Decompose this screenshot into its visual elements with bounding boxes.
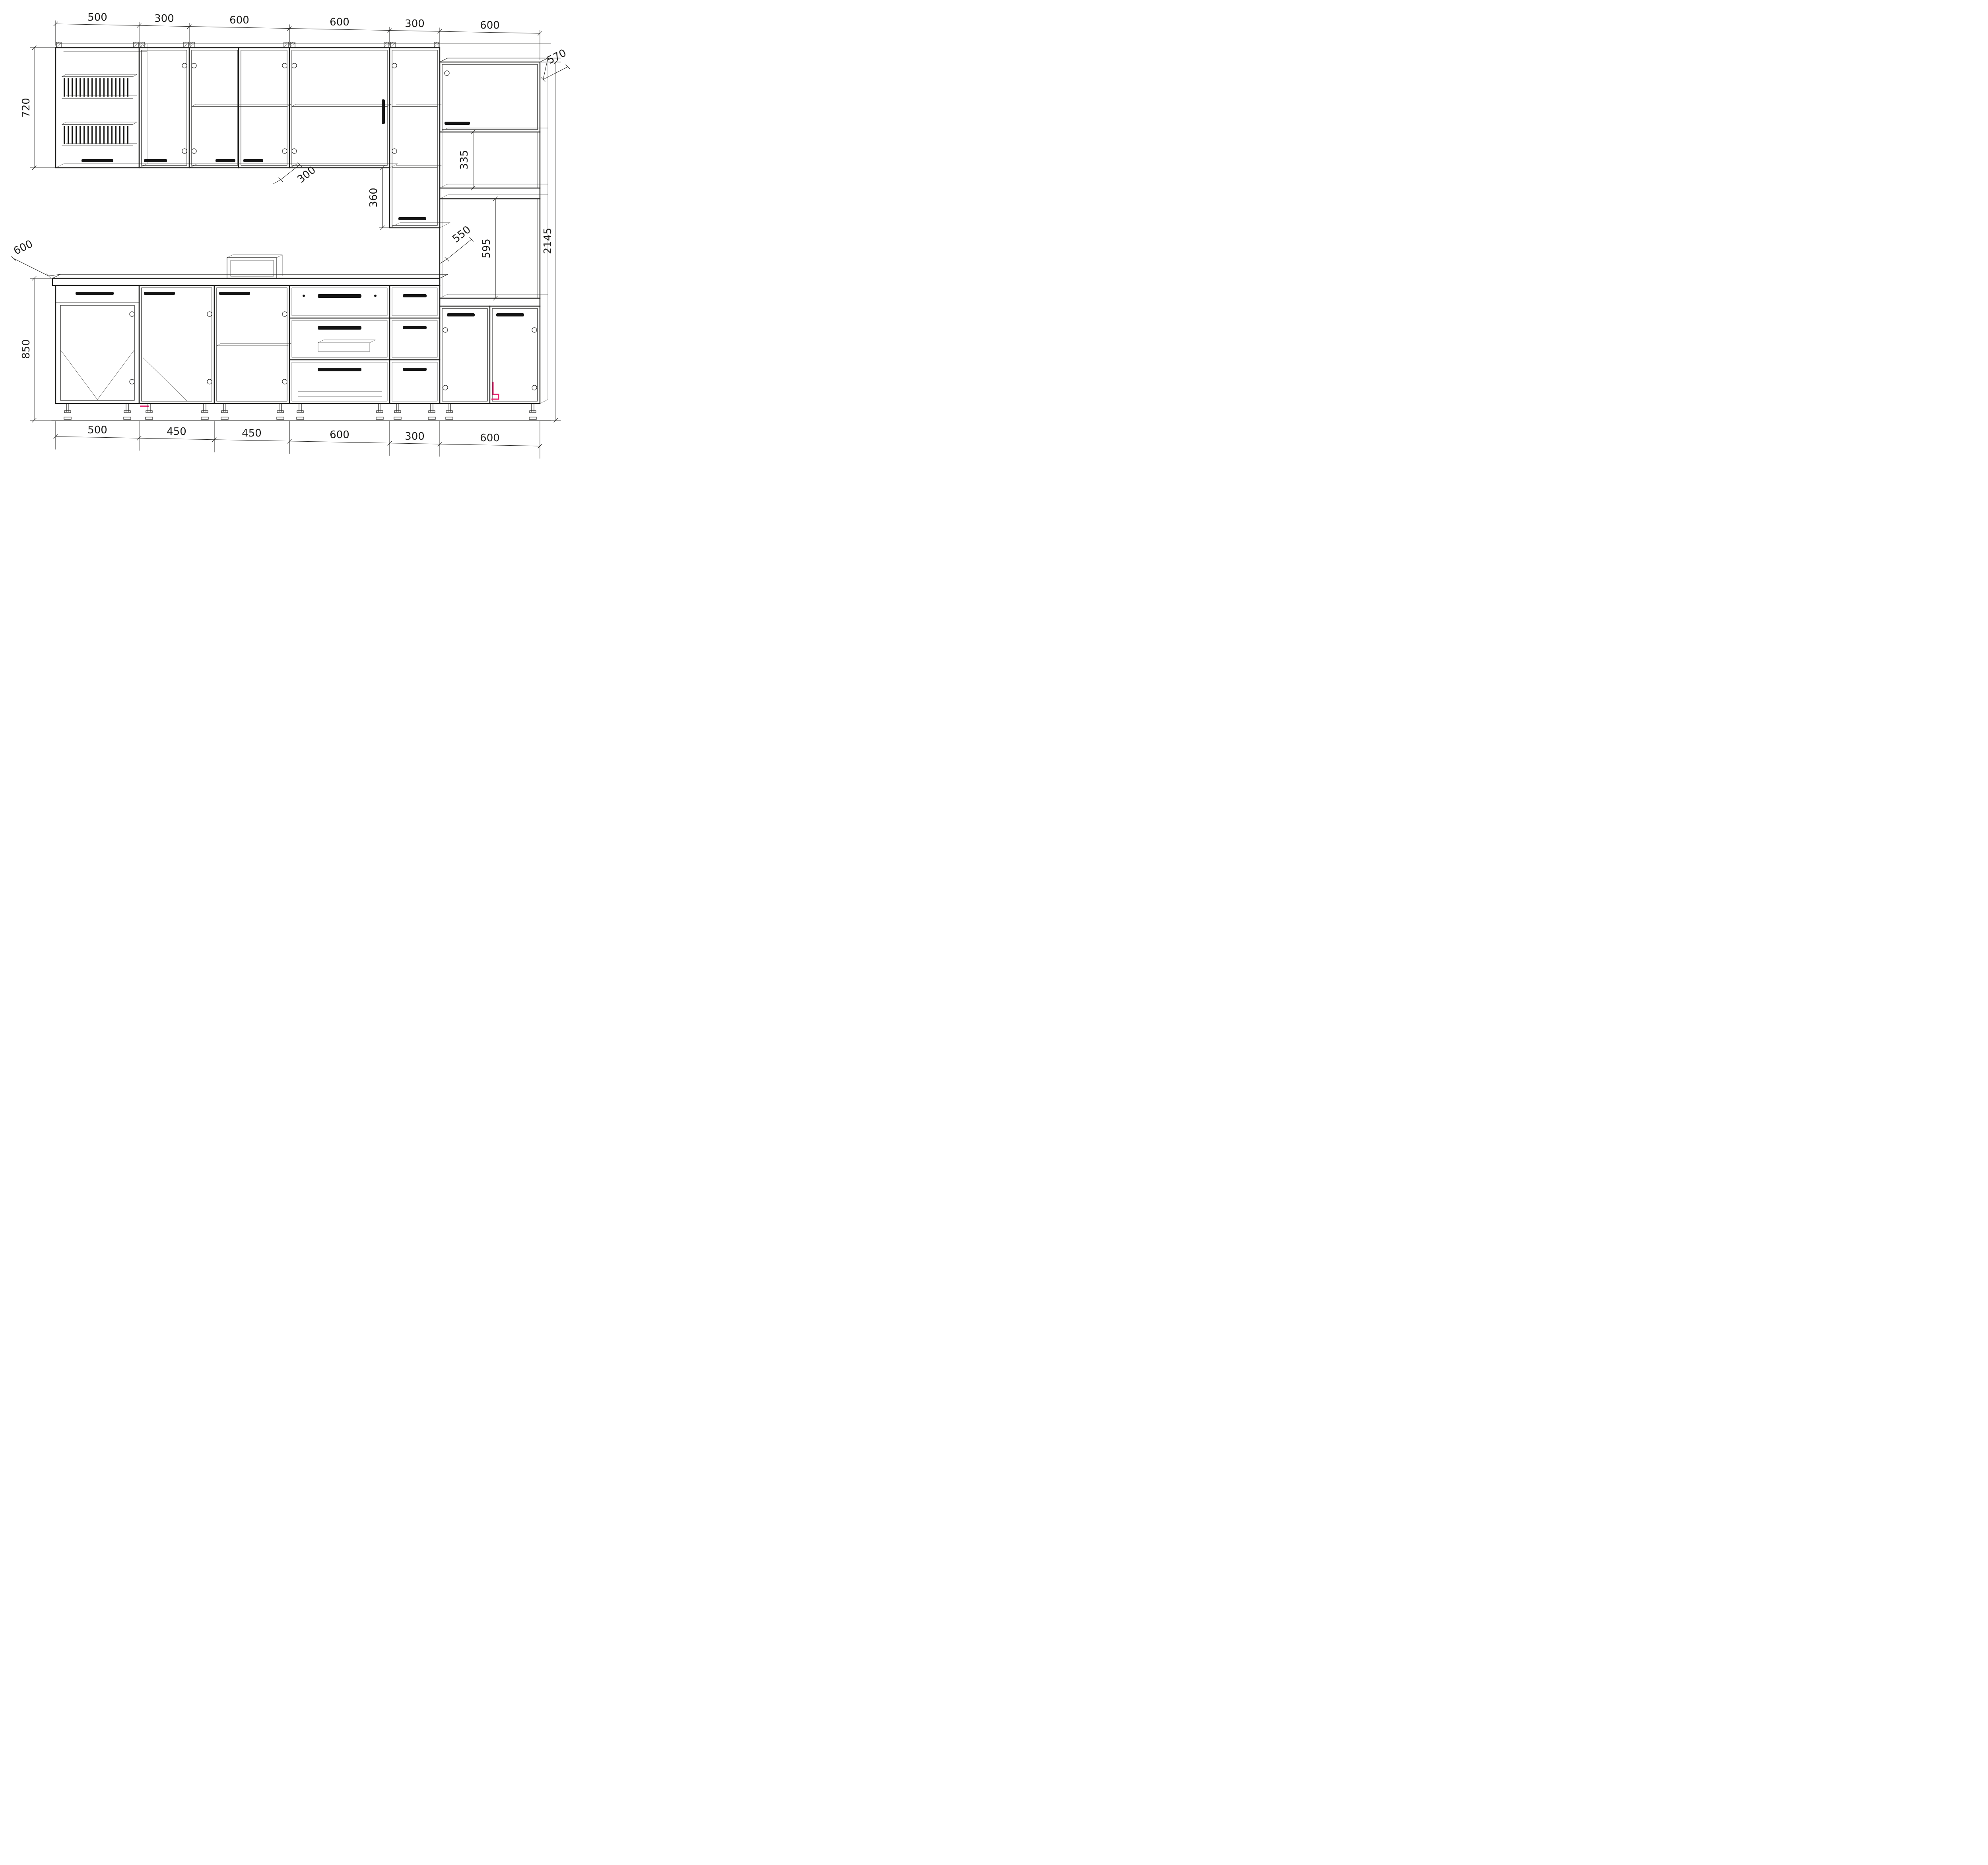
dim-600-depth: 600 — [12, 238, 35, 257]
hinge-icon — [192, 63, 196, 68]
wall-cabinet-300 — [139, 48, 197, 168]
dim-top-600b: 600 — [330, 16, 349, 28]
door-handle — [215, 159, 235, 162]
dimension-850: 850 — [20, 276, 52, 422]
hinge-icon — [192, 149, 196, 153]
screw-dot — [303, 295, 305, 297]
hinge-icon — [292, 63, 297, 68]
dimension-550: 550 — [441, 224, 474, 263]
technical-drawing-page: 500 300 600 600 300 600 500 450 450 600 … — [0, 0, 570, 466]
dim-850: 850 — [20, 339, 32, 359]
dimension-595: 595 — [481, 197, 497, 300]
dim-595: 595 — [481, 239, 493, 258]
wall-cabinet-300-low — [390, 48, 450, 228]
dimension-335: 335 — [458, 130, 475, 190]
drawer-handle — [318, 294, 361, 298]
base-cabinets — [56, 285, 440, 407]
door-handle — [243, 159, 263, 162]
wall-cabinets — [56, 44, 450, 228]
pink-fitting-mark — [140, 406, 149, 407]
hinge-icon — [282, 379, 287, 384]
dim-bottom-500: 500 — [87, 424, 107, 436]
dim-top-300b: 300 — [405, 18, 425, 30]
kitchen-elevation-drawing: 500 300 600 600 300 600 500 450 450 600 … — [0, 0, 570, 466]
hinge-icon — [392, 63, 397, 68]
door-handle — [447, 313, 475, 316]
dim-2145: 2145 — [542, 228, 554, 254]
dim-570: 570 — [545, 47, 568, 66]
hinge-icon — [130, 379, 134, 384]
door-handle-vertical — [382, 99, 385, 124]
adjustable-legs — [64, 404, 536, 419]
dim-bottom-600a: 600 — [330, 429, 349, 441]
dim-720: 720 — [20, 98, 32, 118]
door-handle — [445, 122, 470, 125]
door-handle — [144, 159, 167, 162]
dimension-360: 360 — [368, 166, 390, 230]
dim-top-300: 300 — [154, 13, 174, 25]
dim-bottom-600b: 600 — [480, 432, 500, 444]
oven-niche-595 — [440, 195, 548, 306]
base-cabinet-600-drawers — [289, 285, 390, 404]
plate-rack-upper — [62, 74, 137, 98]
plate-rack-lower — [62, 122, 137, 146]
door-handle — [144, 292, 175, 295]
hinge-icon — [443, 385, 448, 390]
hinge-icon — [207, 312, 212, 316]
hinge-icon — [292, 149, 297, 153]
hinge-icon — [282, 312, 287, 316]
hinge-icon — [130, 312, 134, 316]
dim-300-depth: 300 — [295, 164, 318, 186]
base-cabinet-300-drawers — [390, 285, 440, 404]
open-niche-335 — [440, 128, 548, 188]
hinge-icon — [182, 149, 187, 153]
dimensions: 500 300 600 600 300 600 500 450 450 600 … — [12, 12, 570, 458]
base-cabinet-500 — [56, 285, 139, 404]
dimension-570: 570 — [541, 47, 570, 82]
dim-bottom-450b: 450 — [242, 427, 262, 439]
drawer-handle — [318, 368, 361, 371]
tall-base-doors — [442, 306, 538, 404]
hinge-icon — [282, 63, 287, 68]
drawer-handle — [403, 294, 427, 297]
countertop — [52, 274, 448, 285]
tall-top-door — [440, 64, 540, 132]
pink-mounting-bracket — [491, 382, 499, 399]
drawer-handle — [403, 326, 427, 329]
inner-drawer-box — [318, 340, 375, 351]
tall-cabinet — [440, 58, 548, 404]
hinge-icon — [532, 385, 537, 390]
door-handle — [496, 313, 524, 316]
hinge-icon — [207, 379, 212, 384]
dim-top-600a: 600 — [229, 14, 249, 26]
door-handle — [82, 159, 113, 162]
drawer-handle — [318, 326, 361, 330]
hinge-icon — [443, 328, 448, 332]
dimension-bottom-chain: 500 450 450 600 300 600 — [54, 421, 542, 458]
wall-cabinet-600-double — [189, 48, 297, 168]
dim-550: 550 — [450, 224, 473, 245]
drawer-handle — [403, 368, 427, 371]
wall-cabinet-500-plate-rack — [56, 44, 147, 168]
dim-top-500: 500 — [87, 12, 107, 23]
dimension-600-depth: 600 — [12, 238, 60, 278]
base-cabinet-450-sink — [214, 285, 291, 404]
screw-dot — [374, 295, 377, 297]
door-handle — [398, 217, 426, 220]
base-cabinet-450-door — [139, 285, 214, 404]
wall-cabinet-600-single — [289, 48, 398, 168]
hinge-icon — [532, 328, 537, 332]
dim-360: 360 — [368, 188, 380, 208]
dimension-2145: 2145 — [540, 58, 561, 422]
door-handle — [219, 292, 250, 295]
hinge-icon — [282, 149, 287, 153]
hanging-brackets — [56, 42, 439, 48]
dimension-top-chain: 500 300 600 600 300 600 — [54, 12, 542, 60]
sink-wireframe — [227, 255, 282, 278]
dim-bottom-450a: 450 — [167, 426, 186, 438]
dimension-300-depth: 300 — [274, 163, 318, 186]
dim-top-600c: 600 — [480, 19, 500, 31]
dim-335: 335 — [458, 150, 470, 170]
hinge-icon — [182, 63, 187, 68]
hinge-icon — [392, 149, 397, 153]
door-handle — [76, 292, 114, 295]
hinge-icon — [445, 71, 449, 76]
dimension-720: 720 — [20, 46, 56, 170]
dim-bottom-300: 300 — [405, 431, 425, 442]
